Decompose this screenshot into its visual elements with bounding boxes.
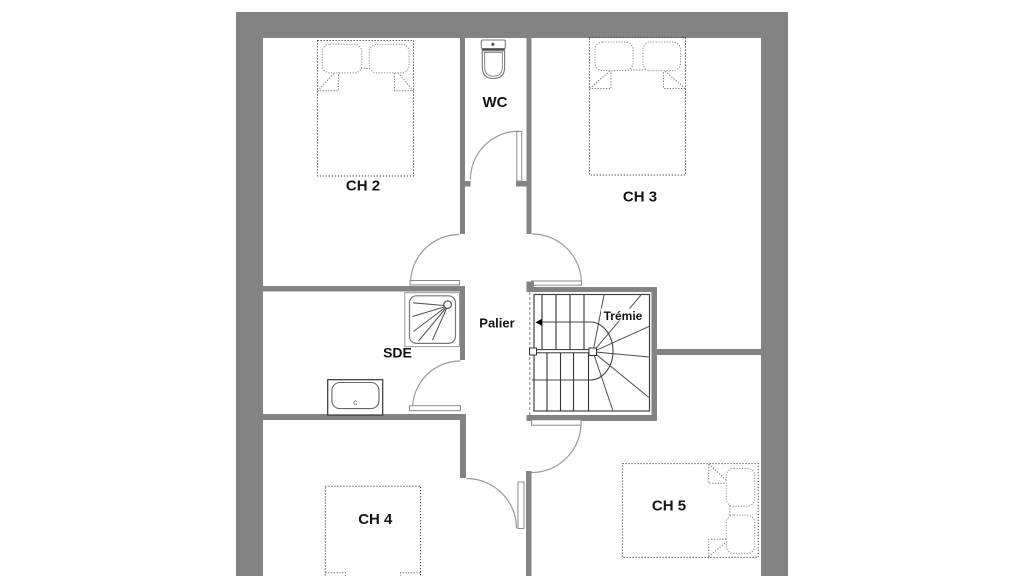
svg-text:CH 2: CH 2 bbox=[346, 178, 380, 195]
svg-text:WC: WC bbox=[483, 94, 508, 111]
svg-text:CH 3: CH 3 bbox=[623, 189, 657, 206]
svg-text:c: c bbox=[353, 398, 357, 407]
svg-text:SDE: SDE bbox=[383, 345, 412, 361]
svg-text:CH 4: CH 4 bbox=[358, 511, 393, 528]
svg-text:Palier: Palier bbox=[479, 316, 514, 331]
svg-text:CH 5: CH 5 bbox=[652, 498, 686, 515]
svg-text:Trémie: Trémie bbox=[604, 309, 643, 323]
